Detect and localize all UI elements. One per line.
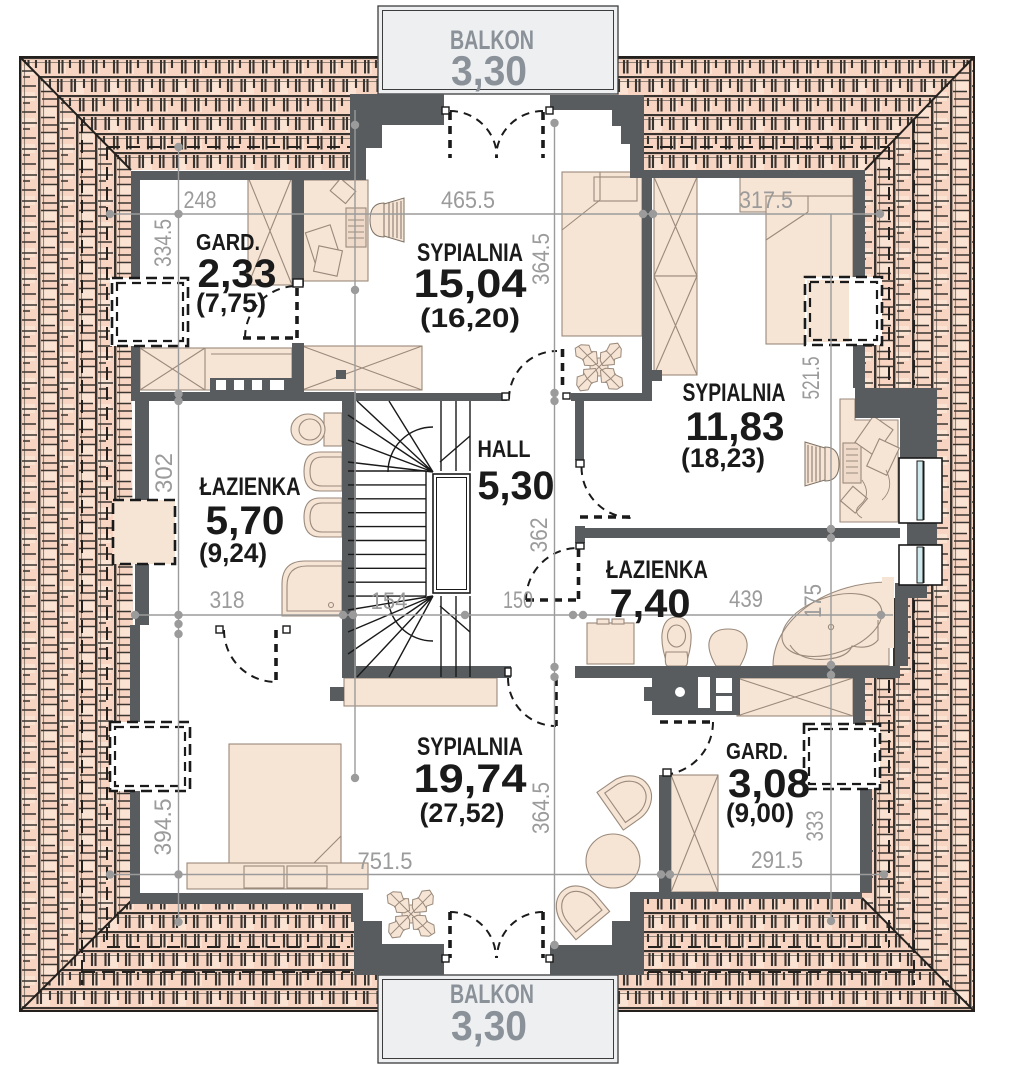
svg-text:364.5: 364.5 <box>528 782 555 834</box>
svg-text:465.5: 465.5 <box>441 187 495 214</box>
svg-text:HALL: HALL <box>478 436 531 463</box>
svg-text:521.5: 521.5 <box>798 357 825 400</box>
svg-text:175: 175 <box>800 584 827 618</box>
svg-text:3,30: 3,30 <box>451 1002 527 1049</box>
svg-text:364.5: 364.5 <box>528 233 555 285</box>
svg-text:5,30: 5,30 <box>478 464 555 508</box>
svg-text:(18,23): (18,23) <box>681 443 765 473</box>
svg-text:333: 333 <box>802 811 829 842</box>
svg-text:751.5: 751.5 <box>358 848 413 875</box>
svg-text:302: 302 <box>151 453 178 493</box>
svg-text:291.5: 291.5 <box>751 847 803 874</box>
svg-text:(16,20): (16,20) <box>420 303 520 333</box>
svg-text:439: 439 <box>729 586 763 613</box>
svg-text:248: 248 <box>184 187 217 214</box>
svg-text:317.5: 317.5 <box>739 187 793 214</box>
svg-text:154: 154 <box>371 588 408 615</box>
svg-text:362: 362 <box>526 518 553 553</box>
svg-text:15,04: 15,04 <box>414 262 528 306</box>
svg-text:(27,52): (27,52) <box>420 798 505 828</box>
svg-text:(9,00): (9,00) <box>726 798 794 828</box>
svg-text:ŁAZIENKA: ŁAZIENKA <box>606 556 708 584</box>
svg-text:5,70: 5,70 <box>206 499 285 543</box>
svg-text:SYPIALNIA: SYPIALNIA <box>683 379 786 407</box>
svg-text:3,30: 3,30 <box>451 47 527 94</box>
svg-text:394.5: 394.5 <box>150 799 177 856</box>
svg-text:318: 318 <box>210 587 245 614</box>
svg-text:150: 150 <box>503 587 533 614</box>
svg-text:ŁAZIENKA: ŁAZIENKA <box>200 473 301 501</box>
svg-text:GARD.: GARD. <box>726 738 788 764</box>
svg-text:334.5: 334.5 <box>150 219 177 267</box>
svg-text:19,74: 19,74 <box>414 757 528 801</box>
svg-text:(7,75): (7,75) <box>196 288 266 318</box>
svg-text:(9,24): (9,24) <box>199 538 267 568</box>
svg-text:7,40: 7,40 <box>610 582 691 626</box>
